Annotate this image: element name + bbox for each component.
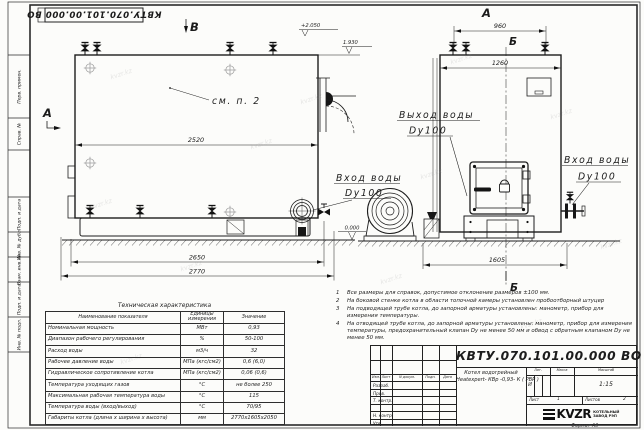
scale-header: Масштаб — [574, 369, 638, 372]
tb-col-list: Лист — [381, 376, 392, 379]
svg-text:1260: 1260 — [492, 59, 508, 67]
param-units: МПа (кгс/см2) — [181, 368, 224, 379]
note-text: На боковой стенке котла в области топочн… — [347, 298, 633, 305]
tb-col-data: Дата — [440, 376, 456, 379]
pipe-labels: Выход воды Dy100 Вход воды Dy100 Вход во… — [313, 110, 630, 210]
param-name: Температура уходящих газов — [46, 380, 181, 391]
valve-icon — [450, 43, 457, 56]
mass-header: Масса — [550, 369, 574, 372]
param-value: 0,93 — [224, 323, 285, 334]
sheet-value: 1 — [557, 398, 560, 402]
table-row: Диапазон рабочего регулирования % 50-100 — [46, 335, 285, 346]
tb-row-tkontr: Т. контр. — [373, 398, 392, 403]
door-pedestal — [464, 216, 534, 241]
water-outlet-label: Выход воды Dy100 — [397, 110, 480, 196]
product-name-line1: Котел водогрейный — [456, 370, 526, 377]
param-value: 70/95 — [224, 402, 285, 413]
door-handle — [474, 188, 491, 192]
svg-text:0.000: 0.000 — [345, 226, 361, 232]
valve-icon — [82, 43, 89, 56]
note-item: 3 На подводящей трубе котла, до запорной… — [336, 306, 633, 320]
valve-icon — [318, 204, 330, 216]
inlet-pipe-right — [561, 192, 585, 218]
skid-base — [80, 218, 310, 236]
sheet-label: Лист — [529, 398, 539, 402]
dim-2650: 2650 — [71, 221, 324, 267]
door-hinge — [523, 171, 530, 179]
logo-text: KVZR — [557, 407, 592, 421]
position-mark-icon — [224, 64, 236, 76]
param-name: Максимальная рабочая температура воды — [46, 391, 181, 402]
note-text: Все размеры для справок, допустимое откл… — [347, 290, 633, 297]
boiler-side-view: 2520 2650 2770 см. п. 2 — [61, 23, 372, 281]
note-text: На отводящей трубе котла, до запорной ар… — [347, 321, 633, 342]
valve-icon — [567, 192, 573, 203]
svg-text:Dy100: Dy100 — [578, 172, 616, 183]
valve-icon — [209, 206, 216, 219]
param-value: 0,06 (0,6) — [224, 368, 285, 379]
param-value: 2770х1605х2050 — [224, 414, 285, 425]
marker-v: В — [190, 20, 199, 34]
margin-label: Подп. и дата — [17, 199, 23, 230]
param-name: Номинальная мощность — [46, 323, 181, 334]
param-name: Диапазон рабочего регулирования — [46, 335, 181, 346]
param-units: % — [181, 335, 224, 346]
note-number: 2 — [336, 298, 347, 305]
param-name: Температура воды (вход/выход) — [46, 402, 181, 413]
margin-label: Взам. инв. № — [17, 254, 23, 285]
lit-value: И — [526, 383, 534, 388]
svg-text:1.930: 1.930 — [343, 40, 359, 46]
note-item: 1 Все размеры для справок, допустимое от… — [336, 290, 633, 297]
note-number: 3 — [336, 306, 347, 320]
position-mark-icon — [84, 157, 96, 169]
col-header-units: Единицы измерения — [181, 312, 224, 324]
scale-value: 1:15 — [574, 382, 638, 388]
param-name: Расход воды — [46, 346, 181, 357]
control-panel — [527, 78, 551, 96]
outlet-stack — [316, 78, 356, 134]
note-item: 2 На боковой стенке котла в области топо… — [336, 298, 633, 305]
position-mark-icon — [84, 62, 96, 74]
tech-table-title: Техническая характеристика — [45, 302, 284, 309]
param-units: м3/ч — [181, 346, 224, 357]
valve-icon — [463, 43, 470, 56]
valve-icon — [137, 206, 144, 219]
svg-text:2770: 2770 — [189, 268, 205, 276]
tb-row-razrab: Разраб. — [373, 383, 389, 388]
valve-icon — [94, 43, 101, 56]
svg-text:1605: 1605 — [489, 256, 505, 264]
param-units: мм — [181, 414, 224, 425]
elevation-zero: 0.000 — [338, 226, 366, 240]
see-note-ref: см. п. 2 — [169, 87, 261, 107]
note-text: На подводящей трубе котла, до запорной а… — [347, 306, 633, 320]
svg-text:Вход воды: Вход воды — [336, 173, 402, 184]
top-left-stamp: КВТУ.070.101.00.000 ВО — [27, 8, 162, 22]
note-number: 1 — [336, 290, 347, 297]
tech-characteristics: Техническая характеристика Наименование … — [45, 302, 284, 425]
marker-a-left: А — [42, 106, 52, 120]
elevation-top: +2.050 — [299, 23, 338, 36]
tb-col-izm: Изм. — [372, 376, 381, 379]
svg-text:+2.050: +2.050 — [301, 23, 321, 29]
marker-a-right: А — [481, 6, 491, 20]
param-value: не более 250 — [224, 380, 285, 391]
tech-table: Наименование показателя Единицы измерени… — [45, 311, 285, 425]
table-row: Габариты котла (длина х ширина х высота)… — [46, 414, 285, 425]
notes-block: 1 Все размеры для справок, допустимое от… — [336, 290, 633, 343]
param-value: 0,6 (6,0) — [224, 357, 285, 368]
company-name: КОТЕЛЬНЫЙ ЗАВОД РЭП — [593, 410, 619, 418]
svg-text:960: 960 — [494, 22, 506, 30]
table-row: Температура воды (вход/выход) °С 70/95 — [46, 402, 285, 413]
lit-header: Лит. — [526, 369, 550, 372]
margin-label: Подп. и дата — [17, 284, 23, 315]
valve-icon — [87, 206, 94, 219]
valve-icon — [542, 43, 549, 56]
inlet-flange — [289, 198, 316, 225]
water-inlet-label-right: Вход воды Dy100 — [562, 155, 630, 205]
position-mark-icon — [224, 206, 236, 218]
table-row: Рабочее давление воды МПа (кгс/см2) 0,6 … — [46, 357, 285, 368]
elevation-mid: 1.930 — [318, 40, 372, 55]
doc-number: КВТУ.070.101.00.000 ВО — [456, 346, 636, 366]
door-hinge — [523, 195, 530, 203]
param-name: Гидравлическое сопротивление котла — [46, 368, 181, 379]
tb-row-prov: Пров. — [373, 391, 385, 396]
table-row: Температура уходящих газов °С не более 2… — [46, 380, 285, 391]
ground-hatch — [358, 241, 615, 247]
param-value: 50-100 — [224, 335, 285, 346]
tb-row-nkontr: Н. контр. — [373, 413, 393, 418]
margin-label: Перв. примен. — [17, 69, 23, 104]
furnace-door — [470, 162, 530, 214]
dim-2520: 2520 — [75, 136, 318, 147]
svg-text:2520: 2520 — [188, 136, 204, 144]
svg-text:Dy100: Dy100 — [345, 188, 383, 199]
tb-col-podp: Подп. — [423, 376, 439, 379]
param-units: °С — [181, 380, 224, 391]
valve-icon — [227, 43, 234, 56]
dim-1605: 1605 — [423, 243, 567, 269]
dim-960: 960 — [454, 22, 546, 47]
table-row: Максимальная рабочая температура воды °С… — [46, 391, 285, 402]
col-header-name: Наименование показателя — [46, 312, 181, 324]
product-name-line2: Heatexpert- КВр -0,93- К ( РВР ) — [456, 377, 526, 384]
param-units: МВт — [181, 323, 224, 334]
frame-margin-labels: Перв. примен. Справ. № Подп. и дата Инв.… — [17, 69, 23, 350]
param-units: МПа (кгс/см2) — [181, 357, 224, 368]
table-row: Расход воды м3/ч 32 — [46, 346, 285, 357]
drawing-sheet: kvzr.kz kvzr.kz kvzr.kz kvzr.kz kvzr.kz … — [0, 0, 644, 430]
note-number: 4 — [336, 321, 347, 342]
logo-bars-icon — [543, 409, 555, 420]
note-item: 4 На отводящей трубе котла, до запорной … — [336, 321, 633, 342]
sheets-label: Листов — [585, 398, 600, 402]
table-row: Гидравлическое сопротивление котла МПа (… — [46, 368, 285, 379]
param-name: Рабочее давление воды — [46, 357, 181, 368]
product-name: Котел водогрейный Heatexpert- КВр -0,93-… — [456, 370, 526, 385]
padlock-icon — [500, 180, 510, 192]
svg-text:Вход воды: Вход воды — [564, 155, 630, 166]
title-block: Изм. Лист N докум. Подп. Дата Разраб. Пр… — [370, 345, 637, 425]
format-label: Формат А3 — [571, 424, 598, 429]
param-name: Габариты котла (длина х ширина х высота) — [46, 414, 181, 425]
valve-icon — [270, 43, 277, 56]
ground-hatch — [62, 240, 354, 246]
margin-label: Инв. № подл. — [17, 319, 23, 351]
param-value: 32 — [224, 346, 285, 357]
marker-b-top: Б — [509, 36, 517, 48]
company-name-line2: ЗАВОД РЭП — [593, 414, 619, 418]
company-logo: KVZR КОТЕЛЬНЫЙ ЗАВОД РЭП — [526, 404, 636, 424]
margin-label: Справ. № — [17, 123, 23, 146]
param-units: °С — [181, 391, 224, 402]
table-row: Номинальная мощность МВт 0,93 — [46, 323, 285, 334]
tb-col-docnum: N докум. — [393, 376, 422, 379]
view-markers: В А А Б Б — [42, 6, 518, 294]
svg-text:Выход воды: Выход воды — [399, 110, 474, 121]
svg-text:Dy100: Dy100 — [409, 126, 447, 137]
stamp-doc-number: КВТУ.070.101.00.000 ВО — [27, 8, 162, 18]
svg-text:2650: 2650 — [189, 254, 205, 262]
col-header-value: Значение — [224, 312, 285, 324]
param-value: 115 — [224, 391, 285, 402]
sheets-value: 2 — [623, 398, 626, 402]
svg-text:см. п. 2: см. п. 2 — [212, 96, 261, 107]
dim-1260: 1260 — [440, 59, 561, 70]
param-units: °С — [181, 402, 224, 413]
tb-row-utv: Утв. — [373, 421, 382, 426]
